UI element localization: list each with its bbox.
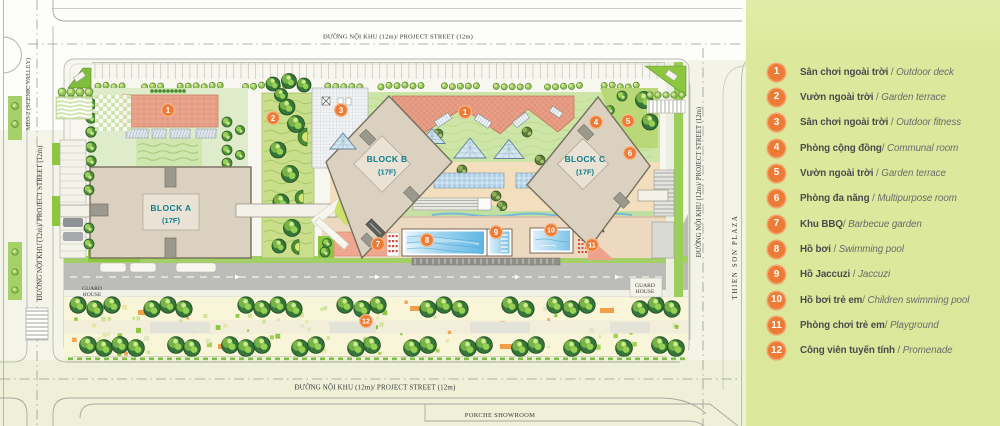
svg-text:2: 2 [271, 114, 276, 123]
svg-text:5: 5 [626, 117, 631, 126]
svg-text:(17F): (17F) [162, 216, 180, 225]
svg-text:9: 9 [494, 228, 499, 237]
svg-text:11: 11 [588, 241, 596, 250]
svg-text:10: 10 [547, 226, 555, 235]
svg-text:4: 4 [594, 118, 599, 127]
svg-text:ĐƯỜNG NỘI KHU (12m)/ PROJECT S: ĐƯỜNG NỘI KHU (12m)/ PROJECT STREET (12m… [36, 145, 44, 301]
svg-text:(17F): (17F) [378, 168, 396, 177]
svg-text:1: 1 [463, 108, 468, 117]
svg-text:6: 6 [628, 149, 633, 158]
svg-text:HOUSE: HOUSE [83, 292, 102, 298]
svg-text:12: 12 [362, 317, 370, 326]
svg-text:BLOCK A: BLOCK A [150, 203, 191, 213]
svg-text:ĐƯỜNG NỘI KHU (12m)/ PROJECT S: ĐƯỜNG NỘI KHU (12m)/ PROJECT STREET (12m… [294, 384, 456, 392]
svg-text:ĐƯỜNG NỘI KHU (12m)/ PROJECT S: ĐƯỜNG NỘI KHU (12m)/ PROJECT STREET (12m… [695, 107, 703, 257]
svg-text:PORCHE SHOWROOM: PORCHE SHOWROOM [465, 412, 535, 419]
svg-text:1: 1 [166, 106, 171, 115]
svg-text:BLOCK B: BLOCK B [367, 154, 408, 164]
svg-text:8: 8 [425, 236, 430, 245]
svg-text:HOUSE: HOUSE [636, 289, 655, 295]
svg-text:7: 7 [376, 240, 381, 249]
svg-text:THIEN SON PLAZA: THIEN SON PLAZA [731, 214, 739, 299]
svg-text:BLOCK C: BLOCK C [565, 154, 606, 164]
svg-text:ĐƯỜNG NỘI KHU (12m)/ PROJECT S: ĐƯỜNG NỘI KHU (12m)/ PROJECT STREET (12m… [323, 33, 473, 41]
svg-text:MĐ3-2 (SCENIC VALLEY): MĐ3-2 (SCENIC VALLEY) [25, 58, 32, 131]
svg-text:(17F): (17F) [576, 168, 594, 177]
svg-text:3: 3 [339, 106, 344, 115]
